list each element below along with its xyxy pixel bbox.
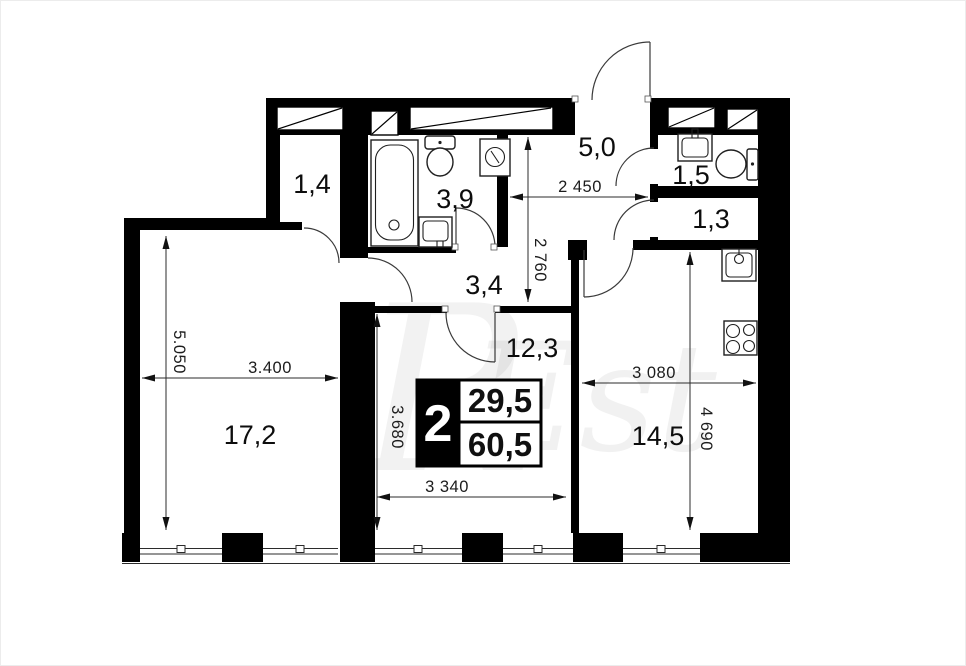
window-icon bbox=[140, 546, 222, 555]
washing-machine-icon bbox=[480, 139, 510, 176]
wall-bottom-corner-left bbox=[122, 533, 140, 562]
room-label-entry-hall: 5,0 bbox=[578, 132, 616, 162]
room-label-kitchen: 14,5 bbox=[632, 421, 685, 451]
dimension-label: 3 340 bbox=[425, 478, 469, 496]
bathroom-door-icon bbox=[452, 208, 497, 250]
room-label-corridor: 3,4 bbox=[465, 270, 503, 300]
wall-left bbox=[124, 218, 140, 562]
apartment-info-box: 2 29,5 60,5 bbox=[417, 380, 541, 466]
room-label-closet: 1,4 bbox=[293, 169, 331, 199]
floor-plan-canvas: R Est bbox=[0, 0, 966, 666]
stove-icon bbox=[724, 321, 757, 355]
dimension-label: 3.400 bbox=[248, 359, 292, 377]
floor-plan-drawing: R Est bbox=[0, 0, 966, 666]
dimension-label: 4 690 bbox=[697, 407, 715, 451]
wall-bedroom-top-right bbox=[495, 306, 571, 313]
wall-hall-wc-c bbox=[650, 237, 658, 250]
room-label-bedroom: 12,3 bbox=[506, 333, 559, 363]
entrance-door-icon bbox=[572, 42, 651, 102]
dimension-label: 5.050 bbox=[170, 330, 188, 374]
wall-bedroom-top-left bbox=[375, 306, 447, 313]
wall-right bbox=[758, 135, 790, 562]
wall-kitchen-left bbox=[571, 243, 579, 533]
kitchen-door-icon bbox=[584, 248, 633, 297]
wall-bottom-pier-1 bbox=[222, 533, 263, 562]
window-icon bbox=[263, 546, 338, 555]
toilet-icon bbox=[425, 136, 455, 176]
closet-door-icon bbox=[304, 228, 339, 263]
wall-hall-wc-b bbox=[650, 184, 658, 202]
wall-closet-bottom bbox=[280, 222, 302, 230]
wall-bottom-corner-right bbox=[700, 533, 790, 562]
rooms-count-value: 2 bbox=[424, 395, 453, 453]
storage-door-icon bbox=[614, 200, 654, 240]
dimension-label: 2 760 bbox=[531, 238, 549, 282]
room-label-living-room: 17,2 bbox=[224, 420, 277, 450]
wall-bathroom-left bbox=[340, 135, 368, 258]
wc-sink-icon bbox=[678, 129, 712, 161]
wall-living-bedroom bbox=[340, 302, 375, 562]
wall-bathroom-bottom bbox=[368, 247, 456, 253]
bathroom-sink-icon bbox=[419, 217, 452, 247]
wall-bottom-pier-3 bbox=[573, 533, 623, 562]
dimension-hall-height: 2 760 bbox=[525, 137, 550, 302]
dimension-label: 3.680 bbox=[388, 405, 406, 449]
dimension-label: 3 080 bbox=[632, 364, 676, 382]
room-label-bathroom: 3,9 bbox=[436, 184, 474, 214]
total-area-value: 60,5 bbox=[468, 426, 532, 463]
wall-living-top bbox=[124, 218, 280, 230]
bathtub-icon bbox=[371, 140, 418, 246]
wall-bottom-pier-2 bbox=[462, 533, 503, 562]
dimension-living-height: 5.050 bbox=[163, 236, 189, 530]
room-label-storage: 1,3 bbox=[692, 204, 730, 234]
living-area-value: 29,5 bbox=[468, 382, 532, 419]
wc-toilet-icon bbox=[716, 149, 758, 180]
room-label-wc: 1,5 bbox=[672, 160, 710, 190]
wall-hall-wc-a bbox=[650, 135, 658, 149]
dimension-hall-width: 2 450 bbox=[510, 178, 648, 201]
window-icon bbox=[623, 546, 700, 555]
window-icon bbox=[503, 546, 573, 555]
kitchen-sink-icon bbox=[722, 249, 756, 281]
wc-door-icon bbox=[616, 148, 654, 186]
dimension-label: 2 450 bbox=[558, 178, 602, 196]
window-icon bbox=[375, 546, 462, 555]
